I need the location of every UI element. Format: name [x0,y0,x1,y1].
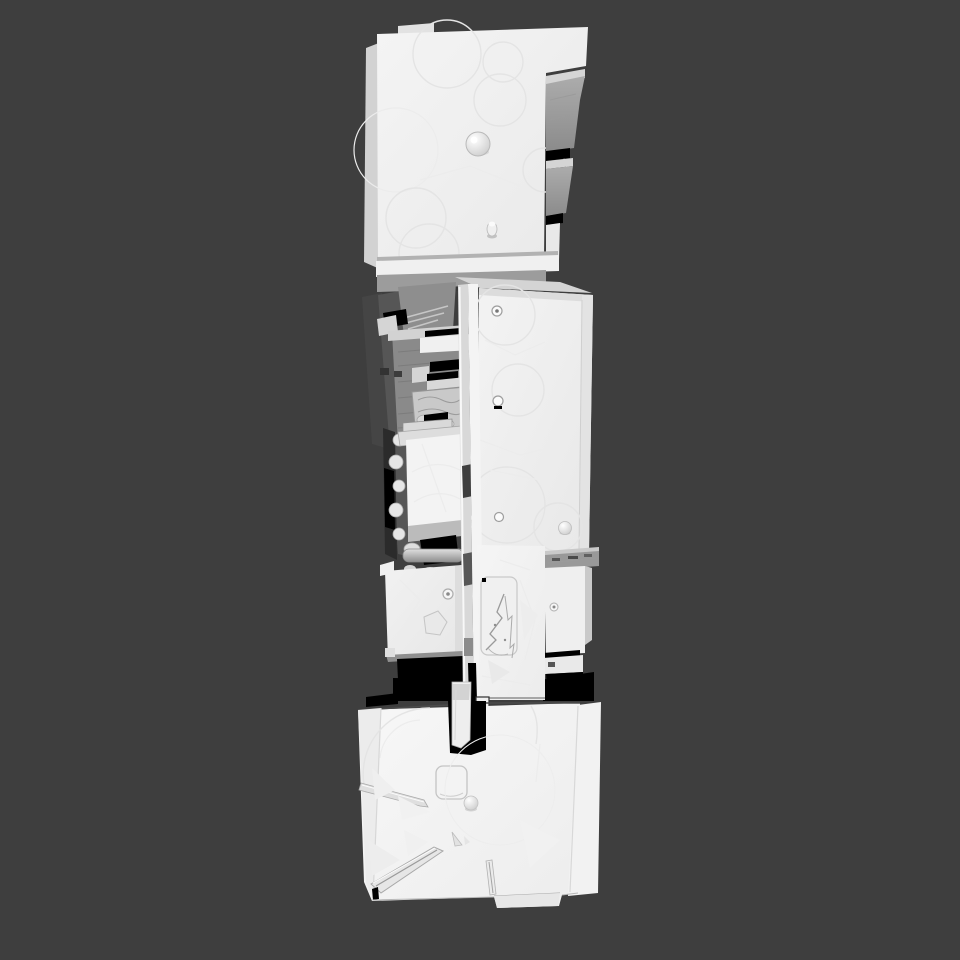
model-part-mid-assembly [362,277,599,710]
mid-left-box [380,561,463,662]
dome-bump [466,132,490,156]
screw-hole [493,396,503,406]
mesh-model[interactable] [354,20,601,908]
mid-right-lower-box [543,566,594,701]
center-textured-panel [476,545,545,710]
model-part-top-slab [354,20,588,292]
dome-bump-small [559,522,572,536]
cable-tube [403,549,463,562]
viewer-canvas[interactable] [0,0,960,960]
dome-bump-base [464,796,478,812]
model-viewport[interactable] [0,0,960,960]
model-part-base-slab [358,682,601,908]
mid-right-step [545,547,599,570]
peg-detail [487,222,497,239]
screw-hole [495,513,504,522]
